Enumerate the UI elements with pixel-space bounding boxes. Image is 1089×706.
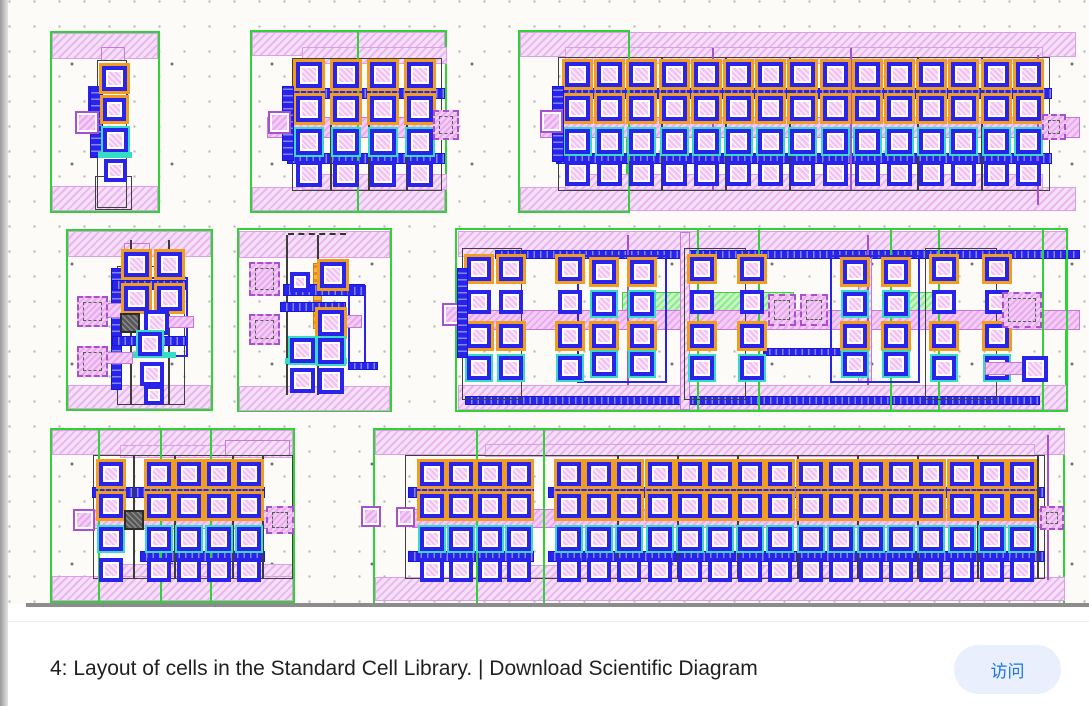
contact-via (499, 257, 523, 281)
contact-via (738, 558, 762, 582)
grid-line (850, 48, 852, 190)
contact-via (99, 527, 123, 551)
contact-via (648, 494, 672, 518)
contact-via (157, 252, 182, 277)
contact-via (951, 62, 976, 87)
contact-via (855, 96, 880, 121)
contact-via (855, 161, 880, 186)
contact-via (177, 527, 201, 551)
contact-via (690, 324, 714, 348)
contact-via (662, 129, 687, 154)
contact-via (557, 558, 581, 582)
routing-track (98, 152, 132, 158)
contact-via (630, 260, 654, 284)
contact-via (370, 62, 396, 88)
grid-line (1066, 228, 1068, 412)
contact-via (932, 356, 956, 380)
contact-via (694, 161, 719, 186)
contact-via (887, 161, 912, 186)
contact-via (420, 558, 444, 582)
contact-via (587, 527, 611, 551)
contact-via (980, 527, 1004, 551)
contact-via (950, 527, 974, 551)
contact-via (296, 161, 322, 187)
io-pad (433, 110, 459, 140)
contact-via (449, 462, 473, 486)
input-pin (73, 509, 95, 531)
input-pin (268, 111, 291, 134)
panel-edge (0, 0, 8, 706)
contact-via (1010, 494, 1034, 518)
contact-via (932, 257, 956, 281)
routing-track (348, 362, 378, 370)
contact-via (799, 558, 823, 582)
contact-via (678, 558, 702, 582)
contact-via (318, 310, 344, 336)
grid-line (232, 455, 234, 579)
grid-line (1037, 455, 1039, 579)
contact-via (829, 462, 853, 486)
contact-via (859, 558, 883, 582)
contact-via (708, 558, 732, 582)
contact-via (678, 527, 702, 551)
image-caption: 4: Layout of cells in the Standard Cell … (50, 656, 910, 682)
contact-via (449, 558, 473, 582)
grid-line (758, 228, 760, 412)
contact-via (740, 257, 764, 281)
contact-via (557, 527, 581, 551)
image-viewer: 4: Layout of cells in the Standard Cell … (0, 0, 1089, 706)
contact-via (370, 161, 396, 187)
contact-via (499, 324, 523, 348)
io-pad (768, 294, 796, 326)
image-bottom-border (26, 603, 1089, 607)
contact-via (919, 96, 944, 121)
contact-via (140, 362, 164, 386)
contact-via (694, 62, 719, 87)
input-pin (540, 110, 563, 133)
contact-via (1010, 462, 1034, 486)
contact-via (407, 129, 433, 155)
contact-via (884, 292, 908, 316)
contact-via (207, 527, 231, 551)
contact-via (799, 462, 823, 486)
contact-via (177, 494, 201, 518)
contact-via (919, 462, 943, 486)
contact-via (99, 462, 123, 486)
contact-via (320, 262, 346, 288)
contact-via (597, 96, 622, 121)
contact-via (790, 129, 815, 154)
contact-via (147, 494, 171, 518)
contact-via (124, 286, 149, 311)
contact-via (629, 62, 654, 87)
contact-via (829, 558, 853, 582)
contact-via (859, 527, 883, 551)
contact-via (950, 462, 974, 486)
rail-tab (225, 440, 290, 456)
contact-via (758, 62, 783, 87)
contact-via (708, 527, 732, 551)
contact-via (565, 62, 590, 87)
contact-via (467, 324, 491, 348)
contact-via (565, 96, 590, 121)
contact-via (1016, 62, 1041, 87)
contact-via (662, 62, 687, 87)
routing-track (985, 362, 1023, 375)
contact-via (290, 338, 315, 363)
contact-via (980, 558, 1004, 582)
contact-via (678, 494, 702, 518)
contact-via (859, 494, 883, 518)
contact-via (738, 527, 762, 551)
contact-via (758, 161, 783, 186)
contact-via (144, 385, 164, 405)
contact-via (694, 129, 719, 154)
contact-via (557, 494, 581, 518)
contact-via (449, 527, 473, 551)
contact-via (557, 462, 581, 486)
contact-via (499, 356, 523, 380)
contact-via (694, 96, 719, 121)
contact-via (768, 527, 792, 551)
contact-via (829, 494, 853, 518)
grid-line (543, 428, 545, 605)
contact-via (629, 161, 654, 186)
contact-via (1010, 527, 1034, 551)
contact-via (884, 324, 908, 348)
contact-via (1022, 356, 1048, 382)
contact-via (104, 159, 127, 182)
contact-via (318, 338, 344, 364)
contact-via (932, 324, 956, 348)
contact-via (237, 558, 261, 582)
contact-via (843, 352, 867, 376)
contact-via (726, 96, 751, 121)
contact-via (984, 129, 1009, 154)
contact-via (177, 558, 201, 582)
contact-via (237, 494, 261, 518)
contact-via (407, 96, 433, 122)
contact-via (592, 260, 616, 284)
contact-via (855, 62, 880, 87)
contact-via (147, 558, 171, 582)
contact-via (980, 462, 1004, 486)
contact-via (237, 462, 261, 486)
contact-via (207, 462, 231, 486)
contact-via (617, 462, 641, 486)
contact-via (726, 62, 751, 87)
io-pad (800, 294, 828, 326)
contact-via (648, 558, 672, 582)
io-pad (1040, 506, 1064, 530)
routing-track (344, 315, 362, 328)
io-pad (249, 262, 280, 296)
contact-via (237, 527, 261, 551)
contact-via (478, 527, 502, 551)
visit-button[interactable]: 访问 (954, 645, 1061, 694)
contact-via (648, 527, 672, 551)
contact-via (708, 494, 732, 518)
io-pad (1042, 114, 1066, 140)
contact-via (507, 527, 531, 551)
contact-via (889, 494, 913, 518)
contact-via (592, 324, 616, 348)
contact-via (740, 356, 764, 380)
grid-line (1042, 228, 1044, 412)
contact-via (768, 558, 792, 582)
layout-image[interactable] (8, 0, 1089, 604)
contact-via (951, 161, 976, 186)
contact-via (296, 129, 322, 155)
contact-via (1010, 558, 1034, 582)
contact-via (738, 462, 762, 486)
contact-via (592, 292, 616, 316)
contact-via (370, 96, 396, 122)
contact-via (823, 96, 848, 121)
contact-via (799, 494, 823, 518)
contact-via (887, 129, 912, 154)
contact-via (370, 129, 396, 155)
contact-via (124, 252, 149, 277)
contact-via (740, 290, 764, 314)
io-pad (77, 296, 108, 327)
contact-via (467, 356, 491, 380)
contact-via (738, 494, 762, 518)
contact-via (147, 462, 171, 486)
contact-via (478, 558, 502, 582)
contact-via (99, 494, 123, 518)
metal-bar (457, 268, 468, 358)
contact-via (984, 62, 1009, 87)
contact-via (799, 527, 823, 551)
contact-via (103, 128, 128, 153)
contact-via (690, 356, 714, 380)
contact-via (467, 290, 491, 314)
contact-via (449, 494, 473, 518)
io-pad (1002, 292, 1042, 328)
contact-via (617, 494, 641, 518)
contact-via (662, 161, 687, 186)
contact-via (887, 96, 912, 121)
contact-via (790, 96, 815, 121)
contact-via (630, 352, 654, 376)
contact-via (726, 161, 751, 186)
io-pad (266, 506, 294, 534)
contact-via (290, 272, 310, 292)
grid-line (977, 455, 979, 579)
contact-via (889, 462, 913, 486)
contact-via (708, 462, 732, 486)
contact-via (124, 510, 144, 530)
contact-via (919, 558, 943, 582)
contact-via (120, 313, 140, 333)
contact-via (984, 161, 1009, 186)
contact-via (296, 62, 322, 88)
contact-via (1016, 96, 1041, 121)
contact-via (740, 324, 764, 348)
routing-track (168, 316, 194, 328)
contact-via (597, 129, 622, 154)
contact-via (662, 96, 687, 121)
contact-via (420, 462, 444, 486)
contact-via (565, 129, 590, 154)
contact-via (690, 257, 714, 281)
contact-via (177, 462, 201, 486)
io-pad (249, 314, 280, 345)
power-rail (239, 231, 390, 258)
contact-via (565, 161, 590, 186)
contact-via (587, 462, 611, 486)
contact-via (207, 558, 231, 582)
contact-via (768, 494, 792, 518)
contact-via (884, 352, 908, 376)
input-pin (361, 506, 381, 527)
contact-via (333, 129, 359, 155)
contact-via (138, 332, 162, 356)
grid-line (174, 455, 176, 579)
input-pin (75, 111, 99, 134)
contact-via (843, 324, 867, 348)
contact-via (843, 260, 867, 284)
contact-via (333, 161, 359, 187)
contact-via (950, 558, 974, 582)
contact-via (420, 527, 444, 551)
contact-via (758, 129, 783, 154)
contact-via (558, 356, 582, 380)
contact-via (768, 462, 792, 486)
contact-via (790, 62, 815, 87)
grid-line (262, 455, 264, 579)
contact-via (690, 290, 714, 314)
contact-via (648, 462, 672, 486)
contact-via (919, 129, 944, 154)
contact-via (507, 558, 531, 582)
contact-via (919, 494, 943, 518)
contact-via (558, 324, 582, 348)
io-pad (77, 346, 108, 377)
grid-line (286, 235, 288, 395)
contact-via (597, 62, 622, 87)
contact-via (859, 462, 883, 486)
contact-via (407, 161, 433, 187)
contact-via (790, 161, 815, 186)
contact-via (587, 494, 611, 518)
contact-via (558, 257, 582, 281)
contact-via (617, 558, 641, 582)
contact-via (467, 257, 491, 281)
contact-via (597, 161, 622, 186)
contact-via (980, 494, 1004, 518)
grid-line (917, 455, 919, 579)
contact-via (919, 62, 944, 87)
contact-via (99, 558, 123, 582)
contact-via (630, 292, 654, 316)
contact-via (932, 290, 956, 314)
contact-via (823, 161, 848, 186)
contact-via (507, 462, 531, 486)
input-pin (396, 507, 415, 527)
contact-via (823, 129, 848, 154)
grid-line (981, 57, 983, 191)
contact-via (843, 292, 867, 316)
contact-via (951, 129, 976, 154)
contact-via (478, 494, 502, 518)
contact-via (1016, 161, 1041, 186)
contact-via (157, 286, 182, 311)
contact-via (290, 368, 315, 393)
contact-via (617, 527, 641, 551)
contact-via (829, 527, 853, 551)
contact-via (823, 62, 848, 87)
caption-divider (8, 621, 1089, 622)
contact-via (333, 62, 359, 88)
contact-via (951, 96, 976, 121)
contact-via (507, 494, 531, 518)
contact-via (855, 129, 880, 154)
contact-via (207, 494, 231, 518)
contact-via (296, 96, 322, 122)
contact-via (919, 161, 944, 186)
contact-via (407, 62, 433, 88)
contact-via (984, 96, 1009, 121)
contact-via (102, 66, 127, 91)
contact-via (103, 98, 126, 121)
contact-via (887, 62, 912, 87)
contact-via (629, 129, 654, 154)
contact-via (678, 462, 702, 486)
contact-via (889, 558, 913, 582)
contact-via (919, 527, 943, 551)
rail-tab (101, 47, 125, 61)
contact-via (726, 129, 751, 154)
contact-via (587, 558, 611, 582)
contact-via (889, 527, 913, 551)
grid-line (330, 58, 332, 191)
contact-via (333, 96, 359, 122)
contact-via (630, 324, 654, 348)
visit-button-label: 访问 (991, 657, 1025, 682)
contact-via (985, 257, 1009, 281)
contact-via (592, 352, 616, 376)
contact-via (758, 96, 783, 121)
contact-via (478, 462, 502, 486)
contact-via (147, 527, 171, 551)
contact-via (629, 96, 654, 121)
contact-via (558, 290, 582, 314)
contact-via (950, 494, 974, 518)
contact-via (1016, 129, 1041, 154)
contact-via (420, 494, 444, 518)
contact-via (499, 290, 523, 314)
contact-via (884, 260, 908, 284)
contact-via (318, 368, 344, 394)
